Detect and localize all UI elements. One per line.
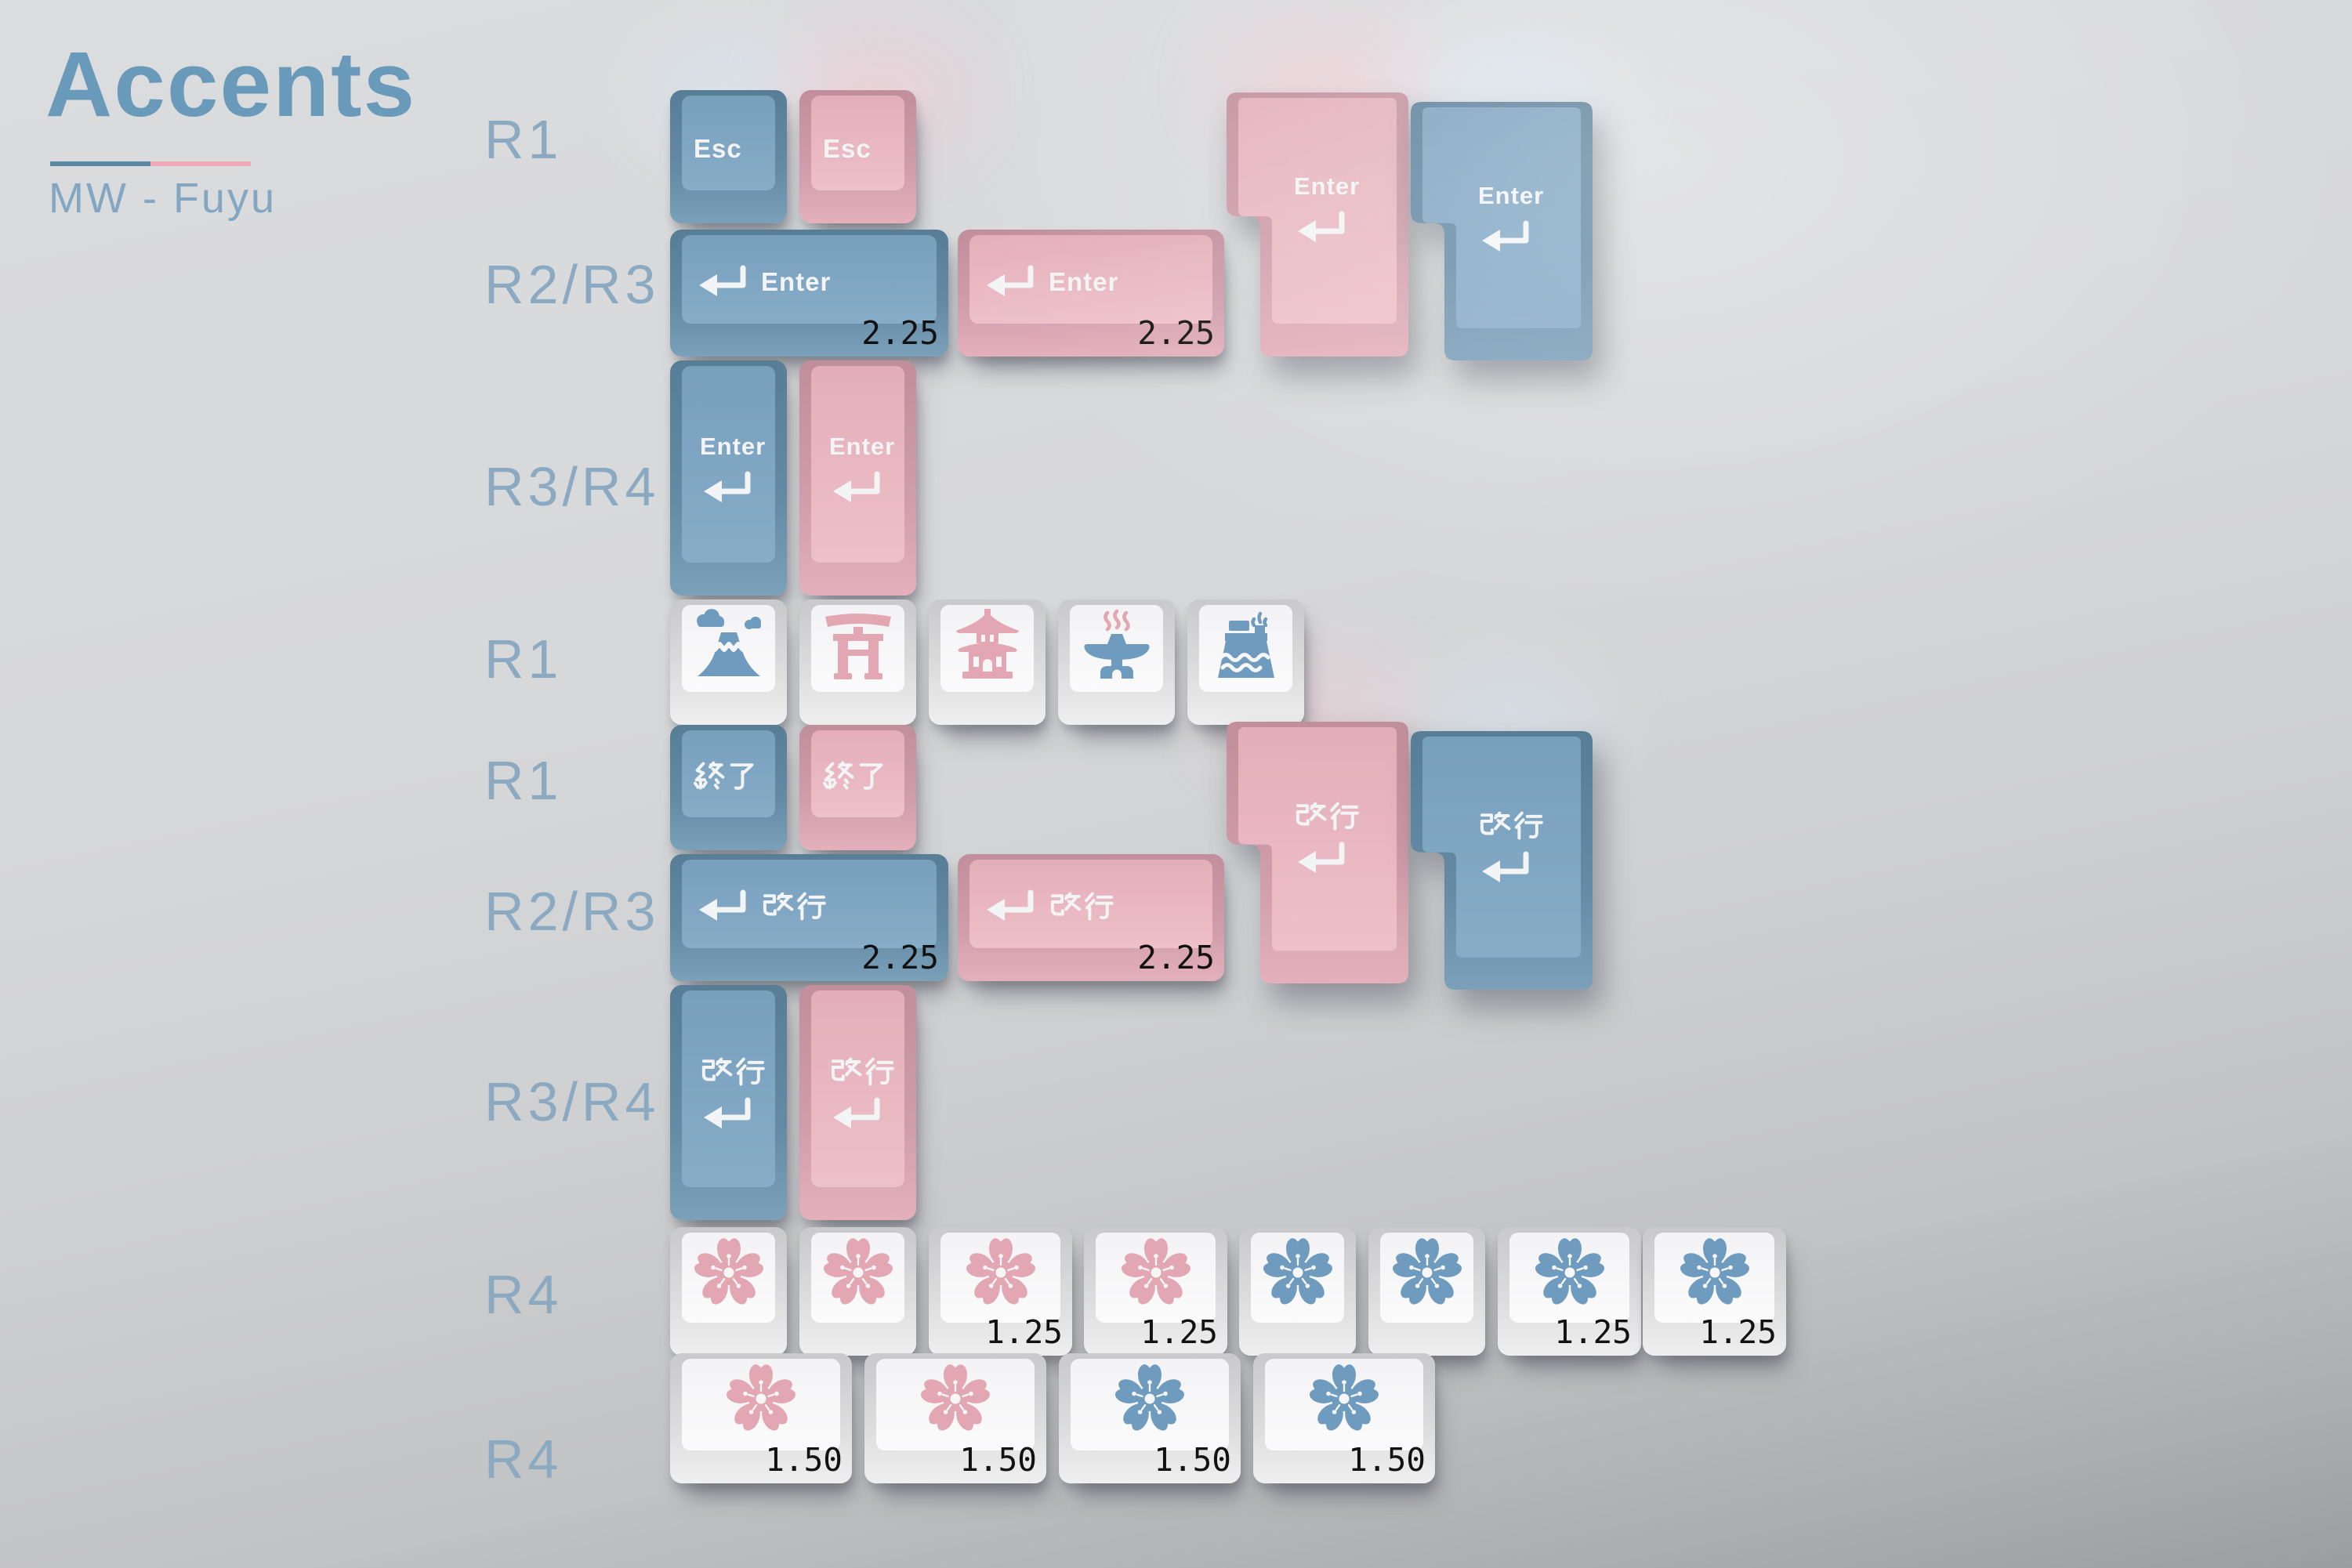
return-arrow-icon <box>829 470 882 506</box>
keycap-render-sheet: Accents MW - Fuyu R1 R2/R3 R3/R4 R1 R1 R… <box>0 0 2352 1568</box>
kanji-kaigyo-icon <box>761 892 827 922</box>
torii-gate-icon <box>821 609 896 684</box>
key-iso-kaigyo-pink <box>1227 722 1408 983</box>
key-sakura-125-pink: 1.25 <box>929 1227 1072 1356</box>
sakura-icon <box>1388 1233 1466 1312</box>
enter-legend: Enter <box>829 433 895 506</box>
size-label: 1.25 <box>1140 1313 1218 1351</box>
sakura-icon <box>819 1233 897 1312</box>
sakura-icon <box>1531 1233 1609 1312</box>
size-label: 1.25 <box>1554 1313 1632 1351</box>
enter-legend: Enter <box>1478 182 1544 255</box>
enter-legend: Enter <box>983 264 1118 300</box>
underline-blue-segment <box>50 161 150 166</box>
key-esc-blue: Esc <box>670 90 787 223</box>
key-sakura-1u-pink <box>670 1227 787 1356</box>
return-arrow-icon <box>983 889 1036 925</box>
size-label: 1.25 <box>1699 1313 1777 1351</box>
sakura-icon <box>1305 1360 1383 1438</box>
sakura-icon <box>1111 1360 1189 1438</box>
key-novelty-hot-spring <box>1058 599 1175 725</box>
key-novelty-volcano <box>670 599 787 725</box>
key-sakura-150-pink: 1.50 <box>670 1353 852 1483</box>
set-subtitle: MW - Fuyu <box>49 174 277 223</box>
key-iso-enter-blue: Enter <box>1411 102 1593 360</box>
size-label: 2.25 <box>1137 314 1215 352</box>
return-arrow-icon <box>695 889 748 925</box>
row-label-r2r3b: R2/R3 <box>484 880 659 943</box>
pagoda-icon <box>950 609 1025 684</box>
key-novelty-pagoda <box>929 599 1046 725</box>
key-iso-enter-pink: Enter <box>1227 92 1408 357</box>
kanji-kaigyo-icon <box>700 1057 766 1087</box>
row-label-r4a: R4 <box>484 1263 562 1326</box>
kaigyo-legend <box>695 889 827 925</box>
return-arrow-icon <box>700 1096 753 1132</box>
return-arrow-icon <box>695 264 748 300</box>
row-label-r1b: R1 <box>484 628 562 690</box>
size-label: 1.50 <box>765 1441 843 1479</box>
row-label-r1c: R1 <box>484 749 562 812</box>
key-enter-225-pink: Enter 2.25 <box>958 230 1224 357</box>
title-underline <box>50 161 251 166</box>
size-label: 2.25 <box>861 939 939 976</box>
size-label: 1.50 <box>1348 1441 1426 1479</box>
row-label-r3r4a: R3/R4 <box>484 455 659 518</box>
volcano-icon <box>691 609 766 684</box>
underline-pink-segment <box>150 161 251 166</box>
esc-legend: Esc <box>694 134 742 164</box>
kanji-shuryo-icon <box>692 761 758 791</box>
kanji-kaigyo-icon <box>1478 811 1544 841</box>
key-shuryo-blue <box>670 725 787 850</box>
page-title: Accents <box>45 31 416 138</box>
return-arrow-icon <box>983 264 1036 300</box>
key-kaigyo-225-pink: 2.25 <box>958 854 1224 981</box>
kaigyo-legend <box>983 889 1114 925</box>
hot-spring-icon <box>1079 609 1154 684</box>
kanji-shuryo-icon <box>821 761 887 791</box>
key-sakura-125-blue: 1.25 <box>1643 1227 1786 1356</box>
sakura-icon <box>690 1233 768 1312</box>
key-sakura-150-blue: 1.50 <box>1253 1353 1435 1483</box>
return-arrow-icon <box>1294 841 1347 877</box>
key-kaigyo-225-blue: 2.25 <box>670 854 948 981</box>
enter-label: Enter <box>1478 182 1544 210</box>
enter-label: Enter <box>761 267 831 297</box>
enter-legend: Enter <box>700 433 766 506</box>
enter-legend: Enter <box>1294 172 1360 246</box>
key-kaigyo-vertical-blue <box>670 985 787 1220</box>
enter-label: Enter <box>1294 172 1360 201</box>
enter-legend: Enter <box>695 264 831 300</box>
key-sakura-1u-blue <box>1239 1227 1356 1356</box>
sakura-icon <box>916 1360 995 1438</box>
key-esc-pink: Esc <box>799 90 916 223</box>
kaigyo-legend <box>829 1057 895 1132</box>
size-label: 2.25 <box>861 314 939 352</box>
row-label-r2r3a: R2/R3 <box>484 253 659 316</box>
sakura-icon <box>1259 1233 1337 1312</box>
enter-label: Enter <box>1049 267 1118 297</box>
size-label: 1.25 <box>985 1313 1063 1351</box>
ferry-icon <box>1209 609 1284 684</box>
esc-legend: Esc <box>823 134 872 164</box>
return-arrow-icon <box>1478 850 1531 886</box>
sakura-icon <box>1117 1233 1195 1312</box>
key-enter-vertical-blue: Enter <box>670 360 787 596</box>
sakura-icon <box>962 1233 1040 1312</box>
row-label-r3r4b: R3/R4 <box>484 1070 659 1133</box>
return-arrow-icon <box>1478 219 1531 255</box>
row-label-r4b: R4 <box>484 1428 562 1490</box>
key-sakura-125-pink: 1.25 <box>1084 1227 1227 1356</box>
return-arrow-icon <box>829 1096 882 1132</box>
kaigyo-legend <box>1294 802 1360 877</box>
return-arrow-icon <box>700 470 753 506</box>
kanji-kaigyo-icon <box>1294 802 1360 831</box>
kanji-kaigyo-icon <box>1049 892 1114 922</box>
sakura-icon <box>722 1360 800 1438</box>
key-shuryo-pink <box>799 725 916 850</box>
key-iso-kaigyo-blue <box>1411 731 1593 990</box>
key-sakura-125-blue: 1.25 <box>1498 1227 1641 1356</box>
key-enter-225-blue: Enter 2.25 <box>670 230 948 357</box>
return-arrow-icon <box>1294 210 1347 246</box>
sakura-icon <box>1676 1233 1754 1312</box>
key-sakura-150-blue: 1.50 <box>1059 1353 1241 1483</box>
enter-label: Enter <box>829 433 895 461</box>
key-sakura-1u-pink <box>799 1227 916 1356</box>
key-novelty-torii <box>799 599 916 725</box>
key-novelty-ferry <box>1187 599 1304 725</box>
key-enter-vertical-pink: Enter <box>799 360 916 596</box>
kaigyo-legend <box>1478 811 1544 886</box>
size-label: 1.50 <box>1154 1441 1231 1479</box>
size-label: 1.50 <box>959 1441 1037 1479</box>
size-label: 2.25 <box>1137 939 1215 976</box>
kanji-kaigyo-icon <box>829 1057 895 1087</box>
key-sakura-150-pink: 1.50 <box>864 1353 1046 1483</box>
key-kaigyo-vertical-pink <box>799 985 916 1220</box>
enter-label: Enter <box>700 433 766 461</box>
row-label-r1a: R1 <box>484 108 562 171</box>
key-sakura-1u-blue <box>1368 1227 1485 1356</box>
kaigyo-legend <box>700 1057 766 1132</box>
